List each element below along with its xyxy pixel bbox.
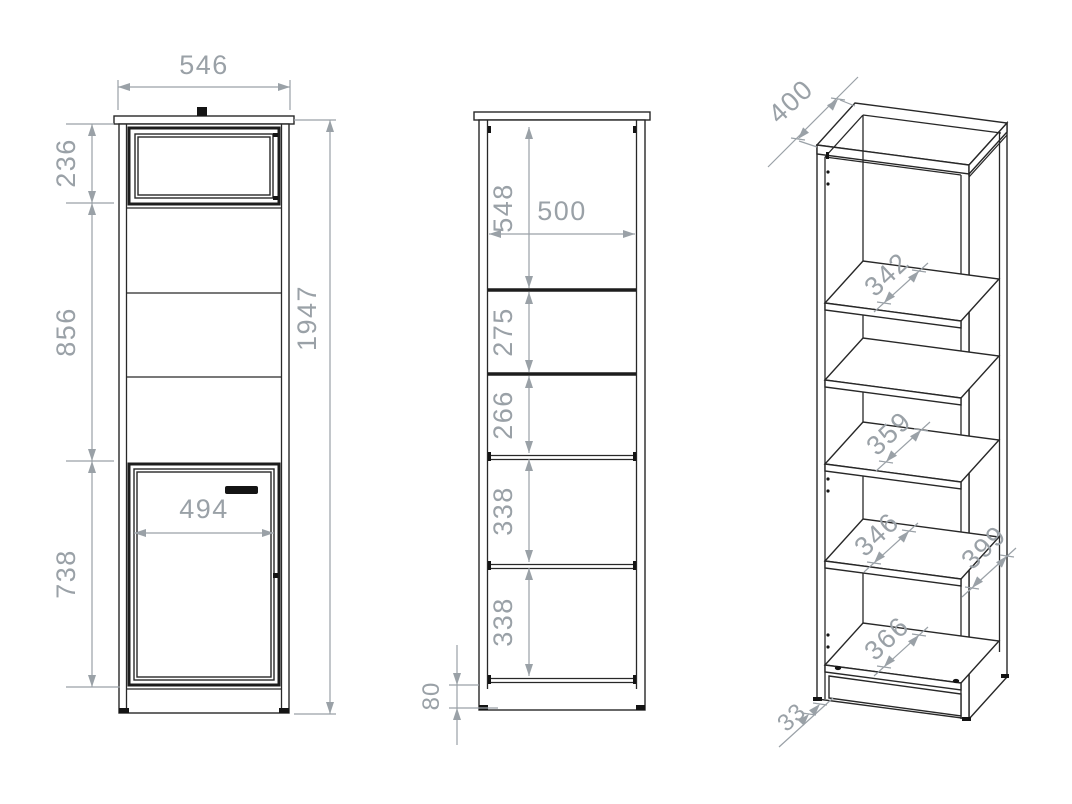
top-board [474,112,650,120]
pin-hole [826,477,829,480]
screw-head [835,666,841,670]
dim-label-338a: 338 [488,486,518,536]
technical-drawing-page: 546 236 856 738 1947 494 [0,0,1072,804]
pin-hole [826,170,829,173]
foot-left [119,708,129,713]
shelf-3-cap-right [633,452,636,461]
screw-head [953,679,959,683]
foot-back-right [1001,674,1009,678]
door-handle [225,486,258,494]
front-view [114,107,294,713]
dim-label-236: 236 [51,138,81,188]
pin-hole [826,633,829,636]
top-board [114,116,294,124]
corner-fitting-left [488,126,491,133]
corner-fitting-right [633,126,636,133]
foot-front-right [962,717,971,721]
door-hinge [273,573,278,578]
dim-label-546: 546 [179,50,229,80]
shelf-4-cap-right [633,561,636,570]
dim-label-548: 548 [488,183,518,233]
top-knob [197,107,207,116]
bottom-cap-right [633,675,636,684]
dim-label-738: 738 [51,549,81,599]
pin-hole [826,645,829,648]
dim-label-275: 275 [488,307,518,357]
flap-hinge-bottom [273,196,278,200]
flap-door-panel [138,137,270,195]
shelf-4-cap-left [488,561,491,570]
flap-hinge-top [273,133,278,137]
cabinet-dimension-drawing: 546 236 856 738 1947 494 [0,0,1072,804]
dim-label-500: 500 [537,196,587,226]
shelf-3-cap-left [488,452,491,461]
dim-label-338b: 338 [488,597,518,647]
dim-label-1947: 1947 [292,285,322,351]
foot-right [279,708,289,713]
foot-front-left [813,697,822,701]
pin-hole [826,489,829,492]
dim-label-266: 266 [488,390,518,440]
foot-right [636,705,645,710]
dim-label-856: 856 [51,307,81,357]
bottom-cap-left [488,675,491,684]
hinge-plate [826,152,829,159]
right-side-panel [969,123,1007,719]
dim-label-80: 80 [418,682,445,711]
dim-label-494: 494 [179,494,229,524]
pin-hole [826,182,829,185]
